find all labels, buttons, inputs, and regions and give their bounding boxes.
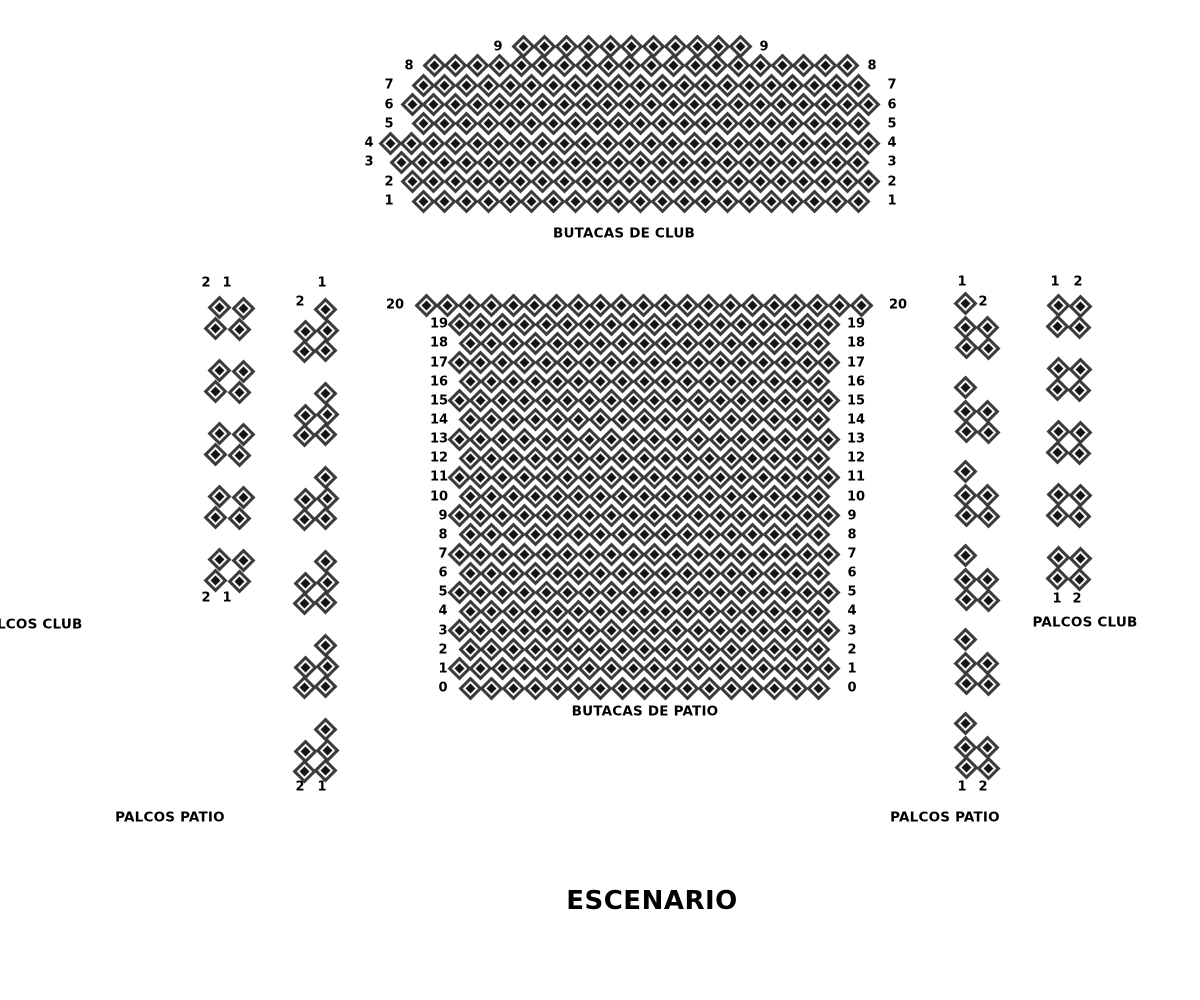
seat[interactable] (954, 335, 978, 359)
seat[interactable] (802, 189, 826, 213)
row-label-right: 7 (887, 79, 896, 92)
seat[interactable] (835, 54, 859, 78)
seat[interactable] (975, 399, 999, 423)
seat[interactable] (610, 676, 634, 700)
seat[interactable] (292, 675, 316, 699)
seat[interactable] (715, 189, 739, 213)
seat[interactable] (207, 547, 231, 571)
seat[interactable] (313, 422, 337, 446)
stage-label: ESCENARIO (566, 888, 738, 914)
seat[interactable] (523, 523, 547, 547)
seat[interactable] (784, 523, 808, 547)
row-label-right: 11 (847, 471, 865, 484)
row-label-left: 5 (384, 117, 393, 130)
seat[interactable] (227, 506, 251, 530)
seat[interactable] (292, 591, 316, 615)
seat[interactable] (976, 672, 1000, 696)
row-label-right: 9 (759, 40, 768, 53)
seat[interactable] (313, 338, 337, 362)
palco-seat-label: 1 (957, 276, 966, 289)
section-caption-palcos-patio-left: PALCOS PATIO (115, 811, 225, 825)
seat[interactable] (541, 189, 565, 213)
seat[interactable] (315, 738, 339, 762)
row-label-right: 6 (847, 567, 856, 580)
seat[interactable] (231, 485, 255, 509)
seat[interactable] (534, 657, 558, 681)
row-label-right: 16 (847, 375, 865, 388)
row-label-left: 7 (384, 79, 393, 92)
seat[interactable] (447, 657, 471, 681)
seat[interactable] (976, 756, 1000, 780)
seat[interactable] (953, 291, 977, 315)
seat[interactable] (610, 408, 634, 432)
palco-seat-label: 1 (317, 781, 326, 794)
seat[interactable] (523, 676, 547, 700)
seat[interactable] (227, 317, 251, 341)
seat[interactable] (953, 627, 977, 651)
seat[interactable] (762, 676, 786, 700)
seat[interactable] (313, 549, 337, 573)
seat[interactable] (292, 339, 316, 363)
seat[interactable] (817, 657, 841, 681)
row-label-right: 18 (847, 337, 865, 350)
row-label-right: 5 (847, 586, 856, 599)
seat[interactable] (231, 422, 255, 446)
seat[interactable] (1045, 314, 1069, 338)
seat[interactable] (207, 358, 231, 382)
seat[interactable] (1068, 294, 1092, 318)
seat[interactable] (476, 189, 500, 213)
row-label-right: 3 (887, 156, 896, 169)
seat[interactable] (650, 189, 674, 213)
seat[interactable] (231, 296, 255, 320)
seat[interactable] (313, 297, 337, 321)
row-label-right: 1 (847, 662, 856, 675)
seat[interactable] (954, 671, 978, 695)
seat[interactable] (976, 588, 1000, 612)
row-label-left: 1 (384, 195, 393, 208)
seat[interactable] (563, 189, 587, 213)
row-label-left: 10 (430, 490, 448, 503)
seat[interactable] (313, 590, 337, 614)
seat[interactable] (1067, 567, 1091, 591)
palco-seat-label: 2 (295, 781, 304, 794)
seat[interactable] (1068, 483, 1092, 507)
seat[interactable] (954, 419, 978, 443)
seat[interactable] (1067, 315, 1091, 339)
seat[interactable] (227, 443, 251, 467)
palco-seat-label: 2 (1073, 276, 1082, 289)
row-label-left: 9 (493, 40, 502, 53)
row-label-left: 4 (438, 605, 447, 618)
seat[interactable] (465, 170, 489, 194)
seat[interactable] (975, 567, 999, 591)
palco-seat-label: 1 (1052, 593, 1061, 606)
row-label-right: 13 (847, 433, 865, 446)
seat[interactable] (1067, 378, 1091, 402)
seat[interactable] (315, 654, 339, 678)
palco-seat-label: 2 (295, 296, 304, 309)
seat[interactable] (203, 568, 227, 592)
seat[interactable] (203, 379, 227, 403)
row-label-left: 16 (430, 375, 448, 388)
seat[interactable] (824, 189, 848, 213)
seat[interactable] (697, 408, 721, 432)
seat[interactable] (954, 503, 978, 527)
seat[interactable] (675, 676, 699, 700)
row-label-left: 11 (430, 471, 448, 484)
seat[interactable] (487, 54, 511, 78)
seat[interactable] (552, 170, 576, 194)
seat[interactable] (975, 315, 999, 339)
row-label-left: 19 (430, 318, 448, 331)
seat[interactable] (708, 657, 732, 681)
seat[interactable] (621, 657, 645, 681)
row-label-right: 20 (889, 299, 907, 312)
seat[interactable] (1046, 293, 1070, 317)
seat[interactable] (292, 507, 316, 531)
section-caption-palcos-club-left: PALCOS CLUB (0, 618, 83, 632)
seat[interactable] (313, 506, 337, 530)
palco-seat-label: 2 (1072, 593, 1081, 606)
seat[interactable] (1045, 566, 1069, 590)
palco-seat-label: 1 (222, 277, 231, 290)
seat[interactable] (857, 170, 881, 194)
row-label-left: 6 (384, 98, 393, 111)
seat[interactable] (954, 755, 978, 779)
seat[interactable] (953, 711, 977, 735)
row-label-right: 4 (887, 137, 896, 150)
seat[interactable] (203, 442, 227, 466)
seat[interactable] (784, 676, 808, 700)
row-label-right: 9 (847, 509, 856, 522)
row-label-right: 5 (887, 117, 896, 130)
seat[interactable] (512, 657, 536, 681)
seat[interactable] (1067, 504, 1091, 528)
row-label-right: 19 (847, 318, 865, 331)
seat[interactable] (976, 504, 1000, 528)
row-label-left: 13 (430, 433, 448, 446)
seat[interactable] (501, 676, 525, 700)
seat[interactable] (975, 483, 999, 507)
row-label-left: 3 (438, 624, 447, 637)
section-caption-palcos-patio-right: PALCOS PATIO (890, 811, 1000, 825)
seat[interactable] (315, 570, 339, 594)
section-caption-butacas-de-patio: BUTACAS DE PATIO (572, 705, 719, 719)
seat[interactable] (574, 54, 598, 78)
seat[interactable] (953, 375, 977, 399)
palco-seat-label: 2 (201, 592, 210, 605)
row-label-left: 9 (438, 509, 447, 522)
row-label-right: 2 (847, 643, 856, 656)
seat[interactable] (1067, 441, 1091, 465)
row-label-right: 2 (887, 175, 896, 188)
seat[interactable] (207, 421, 231, 445)
seat[interactable] (795, 657, 819, 681)
seat[interactable] (1046, 356, 1070, 380)
seat[interactable] (827, 293, 851, 317)
row-label-left: 3 (364, 156, 373, 169)
seat[interactable] (315, 402, 339, 426)
row-label-left: 12 (430, 452, 448, 465)
palco-seat-label: 2 (978, 296, 987, 309)
row-label-right: 8 (847, 528, 856, 541)
seat[interactable] (1045, 377, 1069, 401)
seat[interactable] (203, 505, 227, 529)
seat[interactable] (1046, 482, 1070, 506)
seat[interactable] (639, 170, 663, 194)
seat[interactable] (697, 523, 721, 547)
row-label-right: 4 (847, 605, 856, 618)
seat[interactable] (203, 316, 227, 340)
row-label-left: 8 (404, 59, 413, 72)
seat[interactable] (588, 676, 612, 700)
row-label-right: 10 (847, 490, 865, 503)
row-label-right: 12 (847, 452, 865, 465)
seat[interactable] (975, 735, 999, 759)
seat[interactable] (227, 569, 251, 593)
seat[interactable] (849, 293, 873, 317)
seat[interactable] (953, 543, 977, 567)
seat[interactable] (856, 131, 880, 155)
seat[interactable] (813, 170, 837, 194)
row-label-left: 2 (384, 175, 393, 188)
row-label-left: 20 (386, 299, 404, 312)
row-label-left: 17 (430, 356, 448, 369)
seat[interactable] (846, 189, 870, 213)
seat[interactable] (1046, 545, 1070, 569)
row-label-right: 1 (887, 195, 896, 208)
palco-seat-label: 1 (222, 592, 231, 605)
seat[interactable] (1068, 546, 1092, 570)
seat[interactable] (313, 465, 337, 489)
row-label-right: 14 (847, 413, 865, 426)
seat[interactable] (292, 423, 316, 447)
palco-seat-label: 1 (1050, 276, 1059, 289)
row-label-right: 8 (867, 59, 876, 72)
seat[interactable] (1045, 440, 1069, 464)
seat[interactable] (1068, 357, 1092, 381)
seat[interactable] (207, 484, 231, 508)
seat[interactable] (610, 523, 634, 547)
seat[interactable] (313, 633, 337, 657)
seat[interactable] (784, 408, 808, 432)
seat[interactable] (313, 717, 337, 741)
seat[interactable] (315, 486, 339, 510)
seat[interactable] (976, 336, 1000, 360)
palco-seat-label: 1 (957, 781, 966, 794)
seat[interactable] (748, 54, 772, 78)
seat[interactable] (628, 189, 652, 213)
palco-seat-label: 1 (317, 277, 326, 290)
palco-seat-label: 2 (201, 277, 210, 290)
seat[interactable] (207, 295, 231, 319)
seat[interactable] (737, 189, 761, 213)
seat[interactable] (726, 170, 750, 194)
seat[interactable] (954, 587, 978, 611)
row-label-right: 6 (887, 98, 896, 111)
seat[interactable] (454, 189, 478, 213)
seat[interactable] (975, 651, 999, 675)
seat[interactable] (1068, 420, 1092, 444)
seat[interactable] (976, 420, 1000, 444)
section-caption-palcos-club-right: PALCOS CLUB (1033, 616, 1138, 630)
row-label-left: 8 (438, 528, 447, 541)
seat[interactable] (806, 676, 830, 700)
row-label-right: 7 (847, 548, 856, 561)
row-label-right: 0 (847, 682, 856, 695)
row-label-left: 0 (438, 682, 447, 695)
row-label-left: 2 (438, 643, 447, 656)
row-label-left: 18 (430, 337, 448, 350)
row-label-right: 3 (847, 624, 856, 637)
seat[interactable] (313, 674, 337, 698)
row-label-left: 6 (438, 567, 447, 580)
seat[interactable] (315, 318, 339, 342)
row-label-right: 15 (847, 394, 865, 407)
seat[interactable] (231, 548, 255, 572)
seat[interactable] (773, 657, 797, 681)
row-label-left: 4 (364, 137, 373, 150)
seat[interactable] (1045, 503, 1069, 527)
row-label-left: 5 (438, 586, 447, 599)
section-caption-butacas-de-club: BUTACAS DE CLUB (553, 227, 695, 241)
seat[interactable] (599, 657, 623, 681)
seat[interactable] (313, 381, 337, 405)
row-label-left: 15 (430, 394, 448, 407)
seat[interactable] (227, 380, 251, 404)
seat[interactable] (523, 408, 547, 432)
seat[interactable] (953, 459, 977, 483)
row-label-right: 17 (847, 356, 865, 369)
seat[interactable] (661, 54, 685, 78)
seat[interactable] (1046, 419, 1070, 443)
row-label-left: 14 (430, 413, 448, 426)
row-label-left: 1 (438, 662, 447, 675)
seat[interactable] (686, 657, 710, 681)
palco-seat-label: 2 (978, 781, 987, 794)
seat[interactable] (231, 359, 255, 383)
seat[interactable] (697, 676, 721, 700)
seat-map: BUTACAS DE CLUB BUTACAS DE PATIO PALCOS … (0, 0, 1200, 1000)
seat[interactable] (313, 758, 337, 782)
